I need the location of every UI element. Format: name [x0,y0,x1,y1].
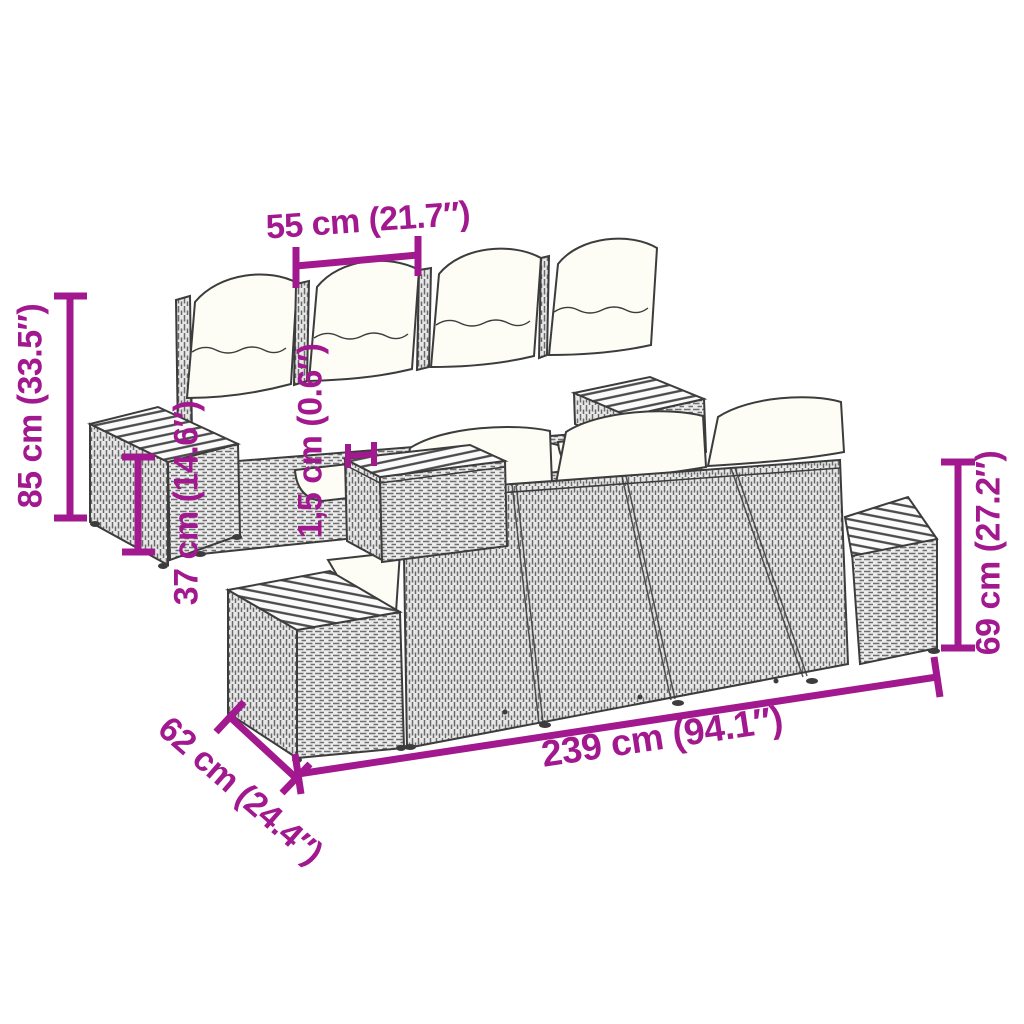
dimension-diagram: 55 cm (21.7″) 85 cm (33.5″) 37 cm (14.6″… [0,0,1024,1024]
table-front-face [297,612,404,758]
dim-table-height-label: 37 cm (14.6″) [168,401,207,605]
dim-total-height-line [54,296,87,518]
sofa-illustration [0,0,1024,1024]
table-front-face [380,461,507,562]
table-right-face [852,539,937,664]
side-table-back-right [845,497,937,664]
side-table-back-left [227,571,406,763]
dim-total-height-label: 85 cm (33.5″) [12,304,51,508]
sofa-back-view [227,397,940,763]
dim-backrest-height-label: 69 cm (27.2″) [970,451,1009,655]
coffee-table [345,445,507,562]
dim-tabletop-thickness-label: 1,5 cm (0.6″) [292,344,331,539]
